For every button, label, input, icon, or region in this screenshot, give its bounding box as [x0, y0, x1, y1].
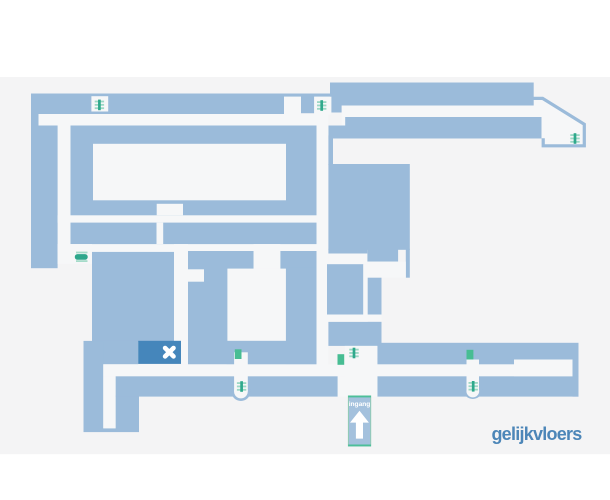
svg-text:ingang: ingang	[349, 401, 371, 408]
svg-text:gelijkvloers: gelijkvloers	[491, 424, 582, 444]
